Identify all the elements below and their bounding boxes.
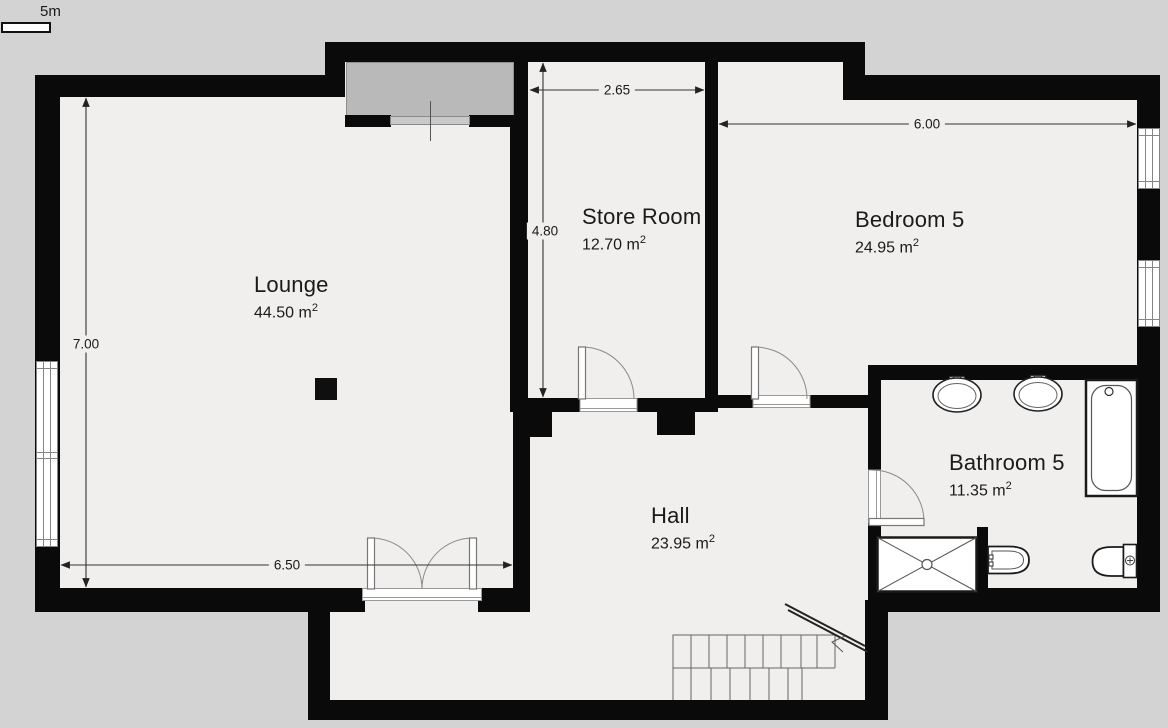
room-name: Bathroom 5: [949, 451, 1065, 475]
dimension-label-store-depth: 4.80: [527, 223, 563, 240]
door-leaf: [869, 519, 924, 526]
dimension-label-lounge-depth: 7.00: [68, 336, 104, 353]
room-name: Hall: [651, 504, 715, 528]
dimension-label-bedroom-width: 6.00: [909, 116, 945, 133]
shower-tray-fixture: [878, 538, 977, 592]
room-area: 12.70 m2: [582, 229, 701, 256]
door-leaf: [368, 538, 375, 589]
door-swing-arc: [371, 538, 422, 589]
dimension-label-store-width: 2.65: [599, 82, 635, 99]
room-label-store-room: Store Room 12.70 m2: [582, 205, 701, 256]
door-leaf: [579, 347, 586, 399]
sink-fixture-left: [933, 377, 981, 413]
room-label-bedroom-5: Bedroom 5 24.95 m2: [855, 208, 964, 259]
door-bathroom: [869, 470, 925, 526]
door-swing-arc: [422, 538, 473, 589]
room-label-lounge: Lounge 44.50 m2: [254, 273, 329, 324]
room-name: Store Room: [582, 205, 701, 229]
bidet-fixture: [988, 547, 1029, 574]
room-area: 11.35 m2: [949, 475, 1065, 502]
door-store-room: [579, 347, 638, 412]
window-right-lower: [1139, 261, 1160, 327]
dimension-label-lounge-width: 6.50: [269, 557, 305, 574]
door-swing-arc: [755, 347, 807, 399]
sink-fixture-right: [1014, 376, 1062, 412]
door-swing-arc: [582, 347, 634, 399]
room-area: 44.50 m2: [254, 297, 329, 324]
room-area: 23.95 m2: [651, 528, 715, 555]
window-right-upper: [1139, 129, 1160, 189]
door-leaf: [752, 347, 759, 399]
room-label-bathroom-5: Bathroom 5 11.35 m2: [949, 451, 1065, 502]
window-left: [37, 362, 58, 547]
plan-vector-overlay: [0, 0, 1168, 728]
room-name: Lounge: [254, 273, 329, 297]
room-name: Bedroom 5: [855, 208, 964, 232]
toilet-fixture: [1093, 545, 1137, 578]
door-bedroom: [752, 347, 811, 408]
stair-rail: [785, 604, 865, 646]
floor-plan: 5m: [0, 0, 1168, 728]
staircase: [673, 604, 868, 700]
door-leaf: [470, 538, 477, 589]
room-area: 24.95 m2: [855, 232, 964, 259]
double-door-lounge: [363, 538, 482, 601]
bathtub-fixture: [1086, 380, 1137, 496]
stair-rail: [788, 610, 868, 652]
room-label-hall: Hall 23.95 m2: [651, 504, 715, 555]
